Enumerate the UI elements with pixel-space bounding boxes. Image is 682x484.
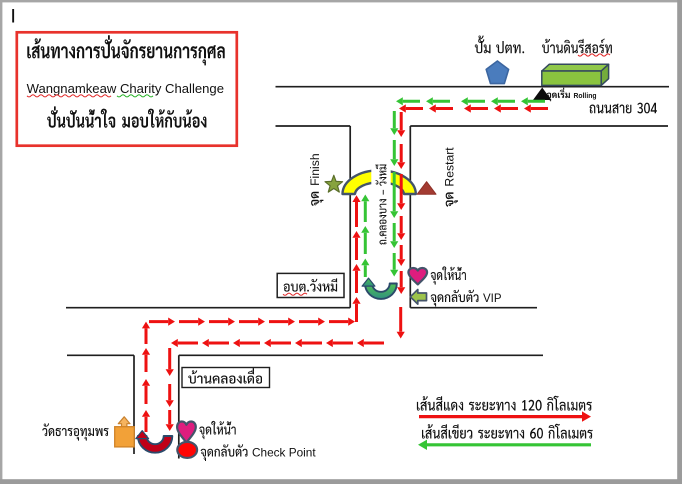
svg-text:Finish: Finish bbox=[308, 153, 322, 186]
svg-text:Restart: Restart bbox=[442, 147, 456, 187]
svg-text:Check Point: Check Point bbox=[252, 446, 316, 460]
svg-text:Wangnamkeaw Charity Challenge: Wangnamkeaw Charity Challenge bbox=[27, 82, 224, 96]
svg-text:Rolling: Rolling bbox=[574, 91, 597, 100]
svg-text:VIP: VIP bbox=[483, 293, 502, 305]
